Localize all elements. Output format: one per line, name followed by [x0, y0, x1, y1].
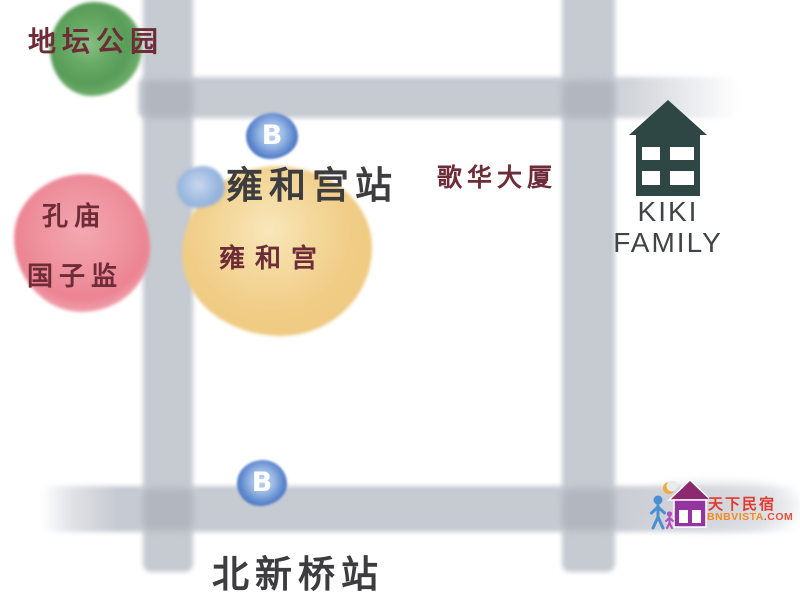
label-yonghegong-temple: 雍和宫	[219, 238, 327, 275]
adult-figure-icon	[652, 496, 665, 529]
watermark-pictogram	[648, 478, 708, 530]
hand-drawn-map: { "map": { "background_color": "#ffffff"…	[0, 0, 800, 560]
label-confucius-temple: 孔庙	[42, 196, 106, 233]
subway-line-letter: B	[246, 113, 298, 159]
watermark-site-tld: .COM	[764, 511, 793, 523]
watermark-site-name: BNBVISTA	[707, 511, 764, 523]
subway-line-letter: B	[237, 460, 287, 506]
label-beixinqiao-station: 北新桥站	[212, 544, 384, 598]
subway-marker-bottom: B	[237, 460, 287, 506]
label-guozijian: 国子监	[27, 256, 123, 293]
road-intersection	[562, 488, 615, 531]
moon-icon	[663, 481, 678, 495]
road-intersection	[562, 80, 615, 118]
watermark-site-text: BNBVISTA.COM	[707, 511, 793, 523]
label-yonghegong-station: 雍和宫站	[226, 155, 398, 209]
bnbvista-watermark: 天下民宿 BNBVISTA.COM	[646, 476, 798, 536]
label-gehua-building: 歌华大厦	[437, 158, 557, 194]
subway-marker-top: B	[246, 113, 298, 159]
kiki-house-icon	[628, 99, 708, 197]
child-figure-icon	[666, 511, 673, 528]
label-ditan-park: 地坛公园	[28, 20, 164, 60]
road-intersection	[143, 488, 193, 531]
kiki-name-line1: KIKI	[598, 196, 738, 227]
road-intersection	[143, 80, 193, 118]
kiki-name-line2: FAMILY	[598, 227, 738, 258]
kiki-family-name: KIKI FAMILY	[598, 196, 738, 258]
